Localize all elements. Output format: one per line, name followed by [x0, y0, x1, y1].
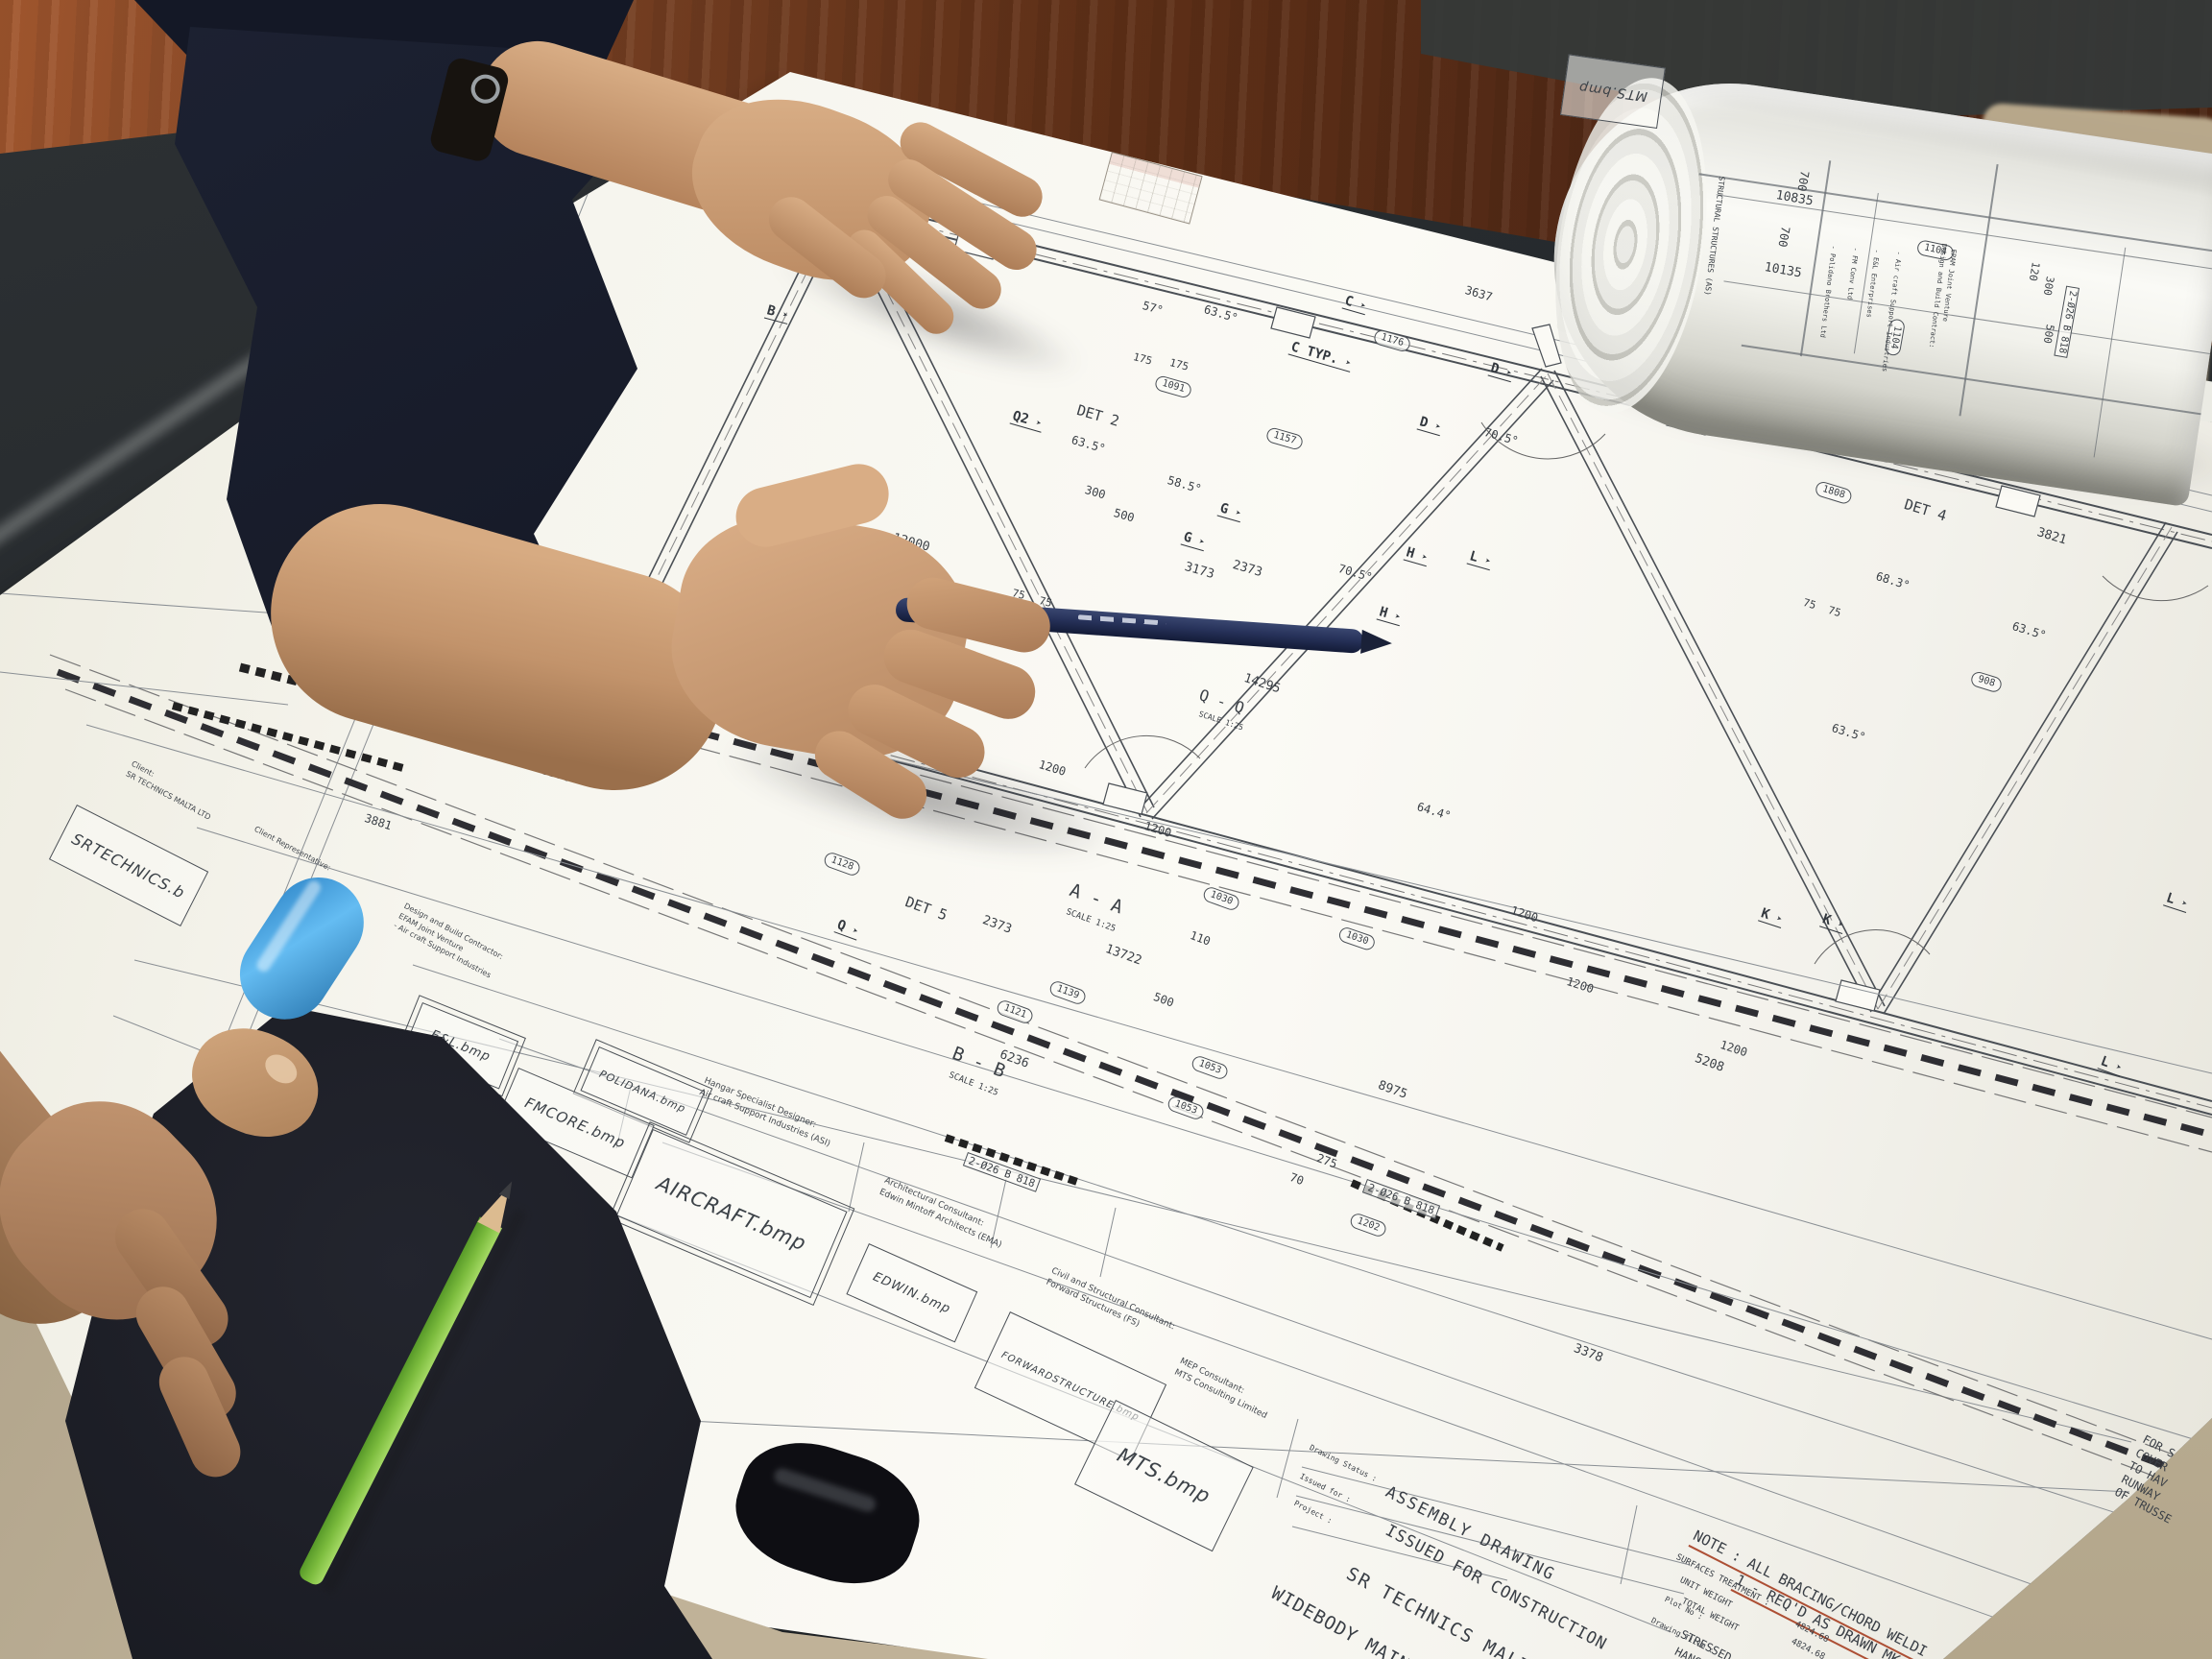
photo-scene: GENERAL NOTES DET 1DET 2DET 4DET 5A - AS… — [0, 0, 2212, 1659]
